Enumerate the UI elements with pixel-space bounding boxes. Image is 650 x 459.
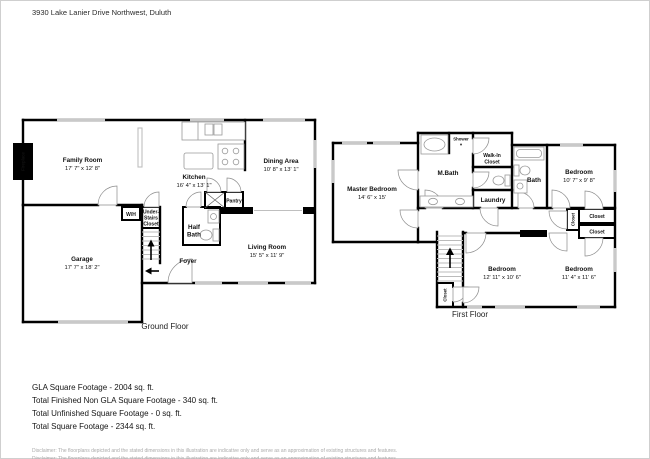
toilet-tank [514, 165, 519, 176]
unfinished-footage: Total Unfinished Square Footage - 0 sq. … [32, 407, 218, 420]
disclaimer: Disclaimer: The floorplans depicted and … [32, 448, 397, 454]
ground-floor-plan: Fireplace Family Room 17' 7" x 12' 8" Ki… [8, 112, 318, 338]
property-address: 3930 Lake Lanier Drive Northwest, Duluth [32, 8, 171, 17]
walkin-label-2: Closet [484, 160, 500, 166]
non-gla-footage: Total Finished Non GLA Square Footage - … [32, 394, 218, 407]
toilet-icon [520, 166, 530, 175]
bath-fixtures [514, 147, 544, 193]
wall-stub-right [303, 207, 315, 214]
closet-top-label: Closet [589, 214, 605, 220]
first-floor-caption: First Floor [410, 310, 530, 319]
pantry-label: Pantry [226, 199, 242, 205]
kitchen-sink-icon [205, 124, 213, 135]
dining-area-dims: 10' 8" x 13' 1" [263, 167, 298, 173]
ground-walls [23, 120, 315, 322]
bath-door-swing [518, 192, 534, 208]
ground-windows [57, 120, 315, 322]
kitchen-island [184, 153, 213, 169]
master-bedroom-label: Master Bedroom [347, 186, 397, 193]
half-bath-label-1: Half [188, 224, 201, 231]
fireplace-label: Fireplace [21, 151, 26, 170]
family-room-label: Family Room [63, 157, 103, 164]
bedroom-tr-label: Bedroom [565, 169, 593, 176]
garage-door-swing [98, 186, 117, 205]
laundry-door-swing [480, 208, 498, 226]
hall-closet-door-swing [549, 211, 567, 229]
first-floor-plan: Master Bedroom 14' 6" x 15' M.Bath Showe… [330, 105, 620, 330]
kitchen-counter [182, 122, 245, 140]
hall-closet-label: Closet [571, 212, 576, 226]
toilet-icon [200, 230, 212, 240]
bath-label: Bath [527, 177, 541, 184]
master-entry-door-swing [400, 210, 418, 228]
kitchen-label: Kitchen [182, 174, 205, 181]
wh-label: W/H [126, 212, 136, 218]
mbath-label: M.Bath [438, 170, 459, 177]
bedroom2-door-swing [466, 233, 486, 253]
bedroom3-door-swing [549, 233, 567, 251]
half-bath-door-swing [186, 192, 201, 207]
shower-label: Shower [453, 137, 469, 142]
family-kitchen-opening [138, 128, 142, 167]
living-room-dims: 15' 5" x 11' 9" [250, 253, 285, 259]
vanity-sink-icon [456, 198, 465, 204]
ground-labels: Family Room 17' 7" x 12' 8" Kitchen 16' … [63, 157, 299, 271]
pantry-door-swing [227, 178, 241, 192]
kitchen-fixtures [182, 122, 245, 169]
first-stairs [437, 236, 463, 281]
floorplan-page: 3930 Lake Lanier Drive Northwest, Duluth [0, 0, 650, 459]
square-footage-summary: GLA Square Footage - 2004 sq. ft. Total … [32, 381, 218, 433]
master-bedroom-dims: 14' 6" x 15' [358, 195, 386, 201]
closet-top-door-swing [585, 191, 603, 209]
dining-area-label: Dining Area [263, 158, 299, 165]
under-stairs-door-swing [144, 192, 159, 207]
half-bath-label-2: Bath [187, 232, 201, 239]
garage-label: Garage [71, 256, 93, 263]
bedroom-br-dims: 11' 4" x 11' 6" [562, 275, 596, 281]
bedroom-bm-label: Bedroom [488, 266, 516, 273]
closet-bottom-label: Closet [589, 230, 605, 236]
laundry-label: Laundry [481, 197, 506, 204]
toilet-room-door-swing [473, 172, 489, 188]
foyer-label: Foyer [179, 258, 197, 265]
ground-stairs [142, 232, 160, 275]
living-room-label: Living Room [248, 244, 287, 251]
walkin-door-swing [473, 138, 489, 154]
kitchen-dims: 16' 4" x 13' 1" [176, 183, 211, 189]
total-footage: Total Square Footage - 2344 sq. ft. [32, 420, 218, 433]
stairs-closet-label: Closet [443, 288, 448, 302]
mbath-master-door-swing [398, 170, 418, 190]
family-room-dims: 17' 7" x 12' 8" [65, 166, 100, 172]
wall-chunk-hall [520, 230, 547, 237]
bedroom-br-label: Bedroom [565, 266, 593, 273]
ground-floor-caption: Ground Floor [105, 322, 225, 331]
bedroom-bm-dims: 12' 11" x 10' 6" [483, 275, 521, 281]
under-stairs-label-3: Closet [143, 222, 159, 228]
garage-dims: 17' 7" x 18' 2" [64, 265, 99, 271]
stove-icon [218, 144, 244, 169]
bedroom-tr-dims: 10' 7" x 9' 8" [563, 178, 595, 184]
toilet-icon [493, 176, 504, 185]
bedroom2-rear-door-swing [463, 287, 479, 303]
bifold-closet-x-icon [205, 192, 225, 208]
gla-footage: GLA Square Footage - 2004 sq. ft. [32, 381, 218, 394]
shower-head-icon [460, 144, 462, 146]
toilet-tank [213, 229, 219, 241]
walkin-label-1: Walk-In [483, 153, 501, 159]
bedroom1-door-swing [552, 190, 570, 208]
vanity-sink-icon [429, 198, 438, 204]
toilet-tank [505, 175, 510, 186]
half-bath-fixtures [200, 210, 219, 241]
mbath-vanity [420, 196, 473, 207]
closet-bottom-door-swing [585, 238, 603, 256]
